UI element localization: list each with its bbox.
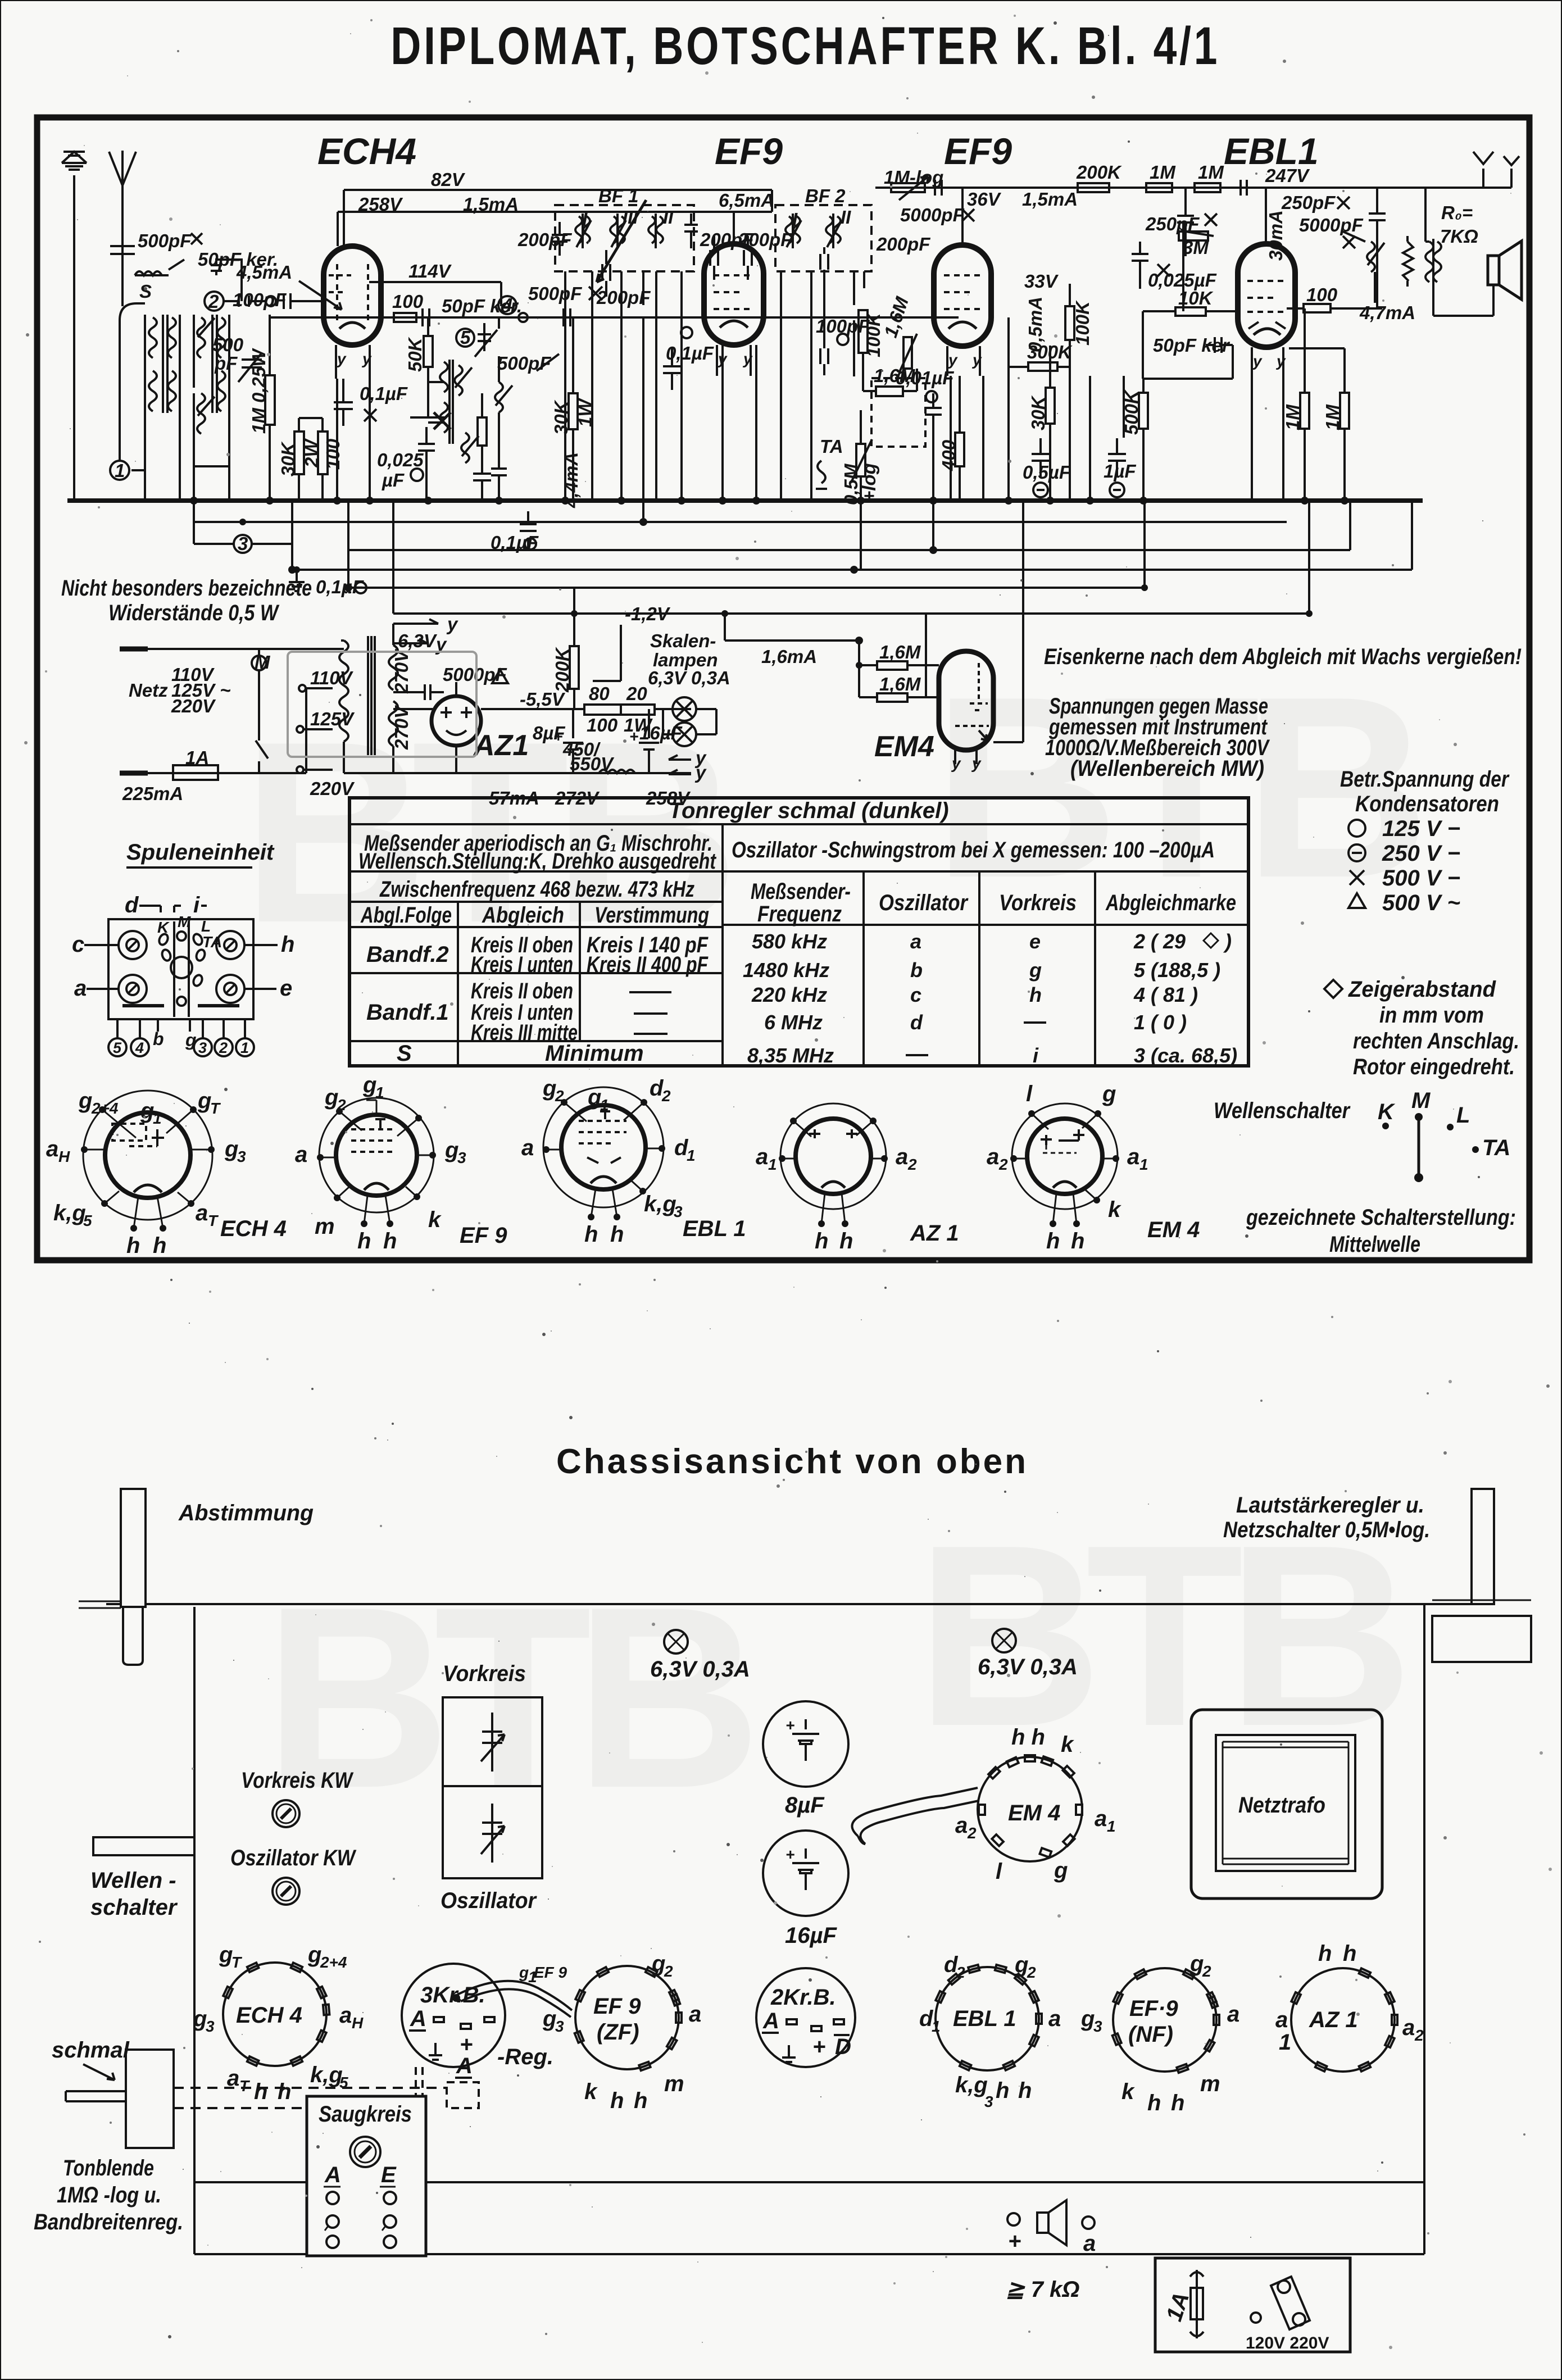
svg-text:g: g	[224, 1137, 238, 1161]
svg-text:schalter: schalter	[90, 1895, 178, 1920]
svg-text:i: i	[1033, 1044, 1039, 1067]
svg-text:b: b	[910, 959, 923, 982]
svg-text:2: 2	[907, 1156, 917, 1173]
svg-text:EF·9: EF·9	[1129, 1996, 1178, 2021]
svg-text:100K: 100K	[863, 312, 884, 357]
svg-text:in mm vom: in mm vom	[1379, 1003, 1484, 1028]
svg-text:50K: 50K	[405, 337, 425, 372]
svg-text:36V: 36V	[967, 189, 1002, 210]
svg-text:EM 4: EM 4	[1008, 1801, 1060, 1825]
svg-text:a: a	[1402, 2015, 1415, 2040]
svg-text:1MΩ -log u.: 1MΩ -log u.	[57, 2183, 161, 2208]
svg-text:g: g	[324, 1085, 338, 1110]
svg-text:k,g: k,g	[310, 2063, 343, 2087]
svg-text:h: h	[1147, 2091, 1161, 2115]
svg-text:EF 9: EF 9	[593, 1994, 641, 2019]
svg-text:g: g	[193, 2006, 207, 2031]
svg-text:6,5mA: 6,5mA	[719, 190, 774, 211]
svg-text:h: h	[839, 1229, 853, 1253]
svg-text:h: h	[278, 2079, 291, 2104]
svg-text:Minimum: Minimum	[545, 1041, 644, 1066]
svg-text:Kreis I unten: Kreis I unten	[471, 952, 573, 977]
svg-text:Rotor eingedreht.: Rotor eingedreht.	[1353, 1055, 1515, 1079]
svg-text:a: a	[339, 2003, 352, 2028]
svg-text:M: M	[1411, 1088, 1431, 1113]
svg-text:a: a	[896, 1144, 908, 1169]
svg-text:EF 9: EF 9	[460, 1223, 507, 1248]
svg-text:l: l	[996, 1859, 1002, 1884]
svg-text:225mA: 225mA	[122, 783, 183, 804]
svg-text:100: 100	[392, 291, 424, 312]
svg-text:T: T	[239, 2077, 251, 2095]
svg-text:5: 5	[113, 1039, 122, 1056]
svg-text:580 kHz: 580 kHz	[752, 930, 827, 953]
svg-text:EM4: EM4	[874, 730, 934, 763]
svg-text:AZ 1: AZ 1	[1309, 2007, 1358, 2032]
svg-text:Wellen -: Wellen -	[90, 1868, 176, 1893]
svg-text:220V: 220V	[171, 696, 216, 716]
svg-text:L: L	[1456, 1103, 1470, 1128]
svg-text:g: g	[1080, 2006, 1095, 2031]
svg-text:82V: 82V	[431, 169, 466, 190]
svg-text:a: a	[1227, 2002, 1239, 2027]
svg-text:AZ1: AZ1	[473, 729, 529, 762]
svg-text:3: 3	[555, 2018, 564, 2035]
svg-text:rechten Anschlag.: rechten Anschlag.	[1353, 1029, 1519, 1053]
svg-text:g: g	[1029, 959, 1042, 982]
svg-text:K: K	[157, 919, 170, 936]
svg-text:2: 2	[1414, 2027, 1424, 2044]
svg-text:500 V −: 500 V −	[1382, 866, 1460, 891]
svg-text:3: 3	[1093, 2018, 1102, 2035]
svg-text:1: 1	[768, 1156, 777, 1173]
svg-text:(NF): (NF)	[1128, 2022, 1173, 2047]
svg-text:5000pF: 5000pF	[1299, 215, 1364, 235]
svg-text:g: g	[519, 1964, 529, 1981]
svg-text:AZ 1: AZ 1	[910, 1221, 959, 1246]
svg-text:I: I	[582, 209, 588, 230]
svg-text:g: g	[219, 1942, 233, 1967]
svg-text:2: 2	[555, 1087, 564, 1105]
svg-text:Meßsender-: Meßsender-	[751, 879, 851, 904]
svg-text:l: l	[1026, 1082, 1033, 1106]
svg-text:6,3V 0,3A: 6,3V 0,3A	[650, 1657, 750, 1682]
svg-text:30K: 30K	[278, 441, 298, 476]
svg-text:II: II	[663, 207, 674, 228]
svg-text:gezeichnete Schalterstellung:: gezeichnete Schalterstellung:	[1246, 1205, 1516, 1230]
svg-text:2: 2	[661, 1087, 671, 1105]
svg-text:2+4: 2+4	[320, 1954, 347, 1971]
svg-text:y: y	[971, 351, 982, 369]
svg-text:h: h	[254, 2079, 267, 2104]
svg-text:g: g	[1014, 1952, 1028, 1977]
svg-text:e: e	[280, 976, 292, 1001]
svg-text:80: 80	[589, 683, 610, 704]
svg-text:50pF ker: 50pF ker	[1153, 335, 1230, 356]
svg-text:4 ( 81 ): 4 ( 81 )	[1133, 983, 1198, 1006]
svg-text:3: 3	[206, 2018, 215, 2035]
svg-text:1: 1	[153, 1110, 162, 1127]
svg-text:7KΩ: 7KΩ	[1440, 226, 1478, 247]
svg-text:220V: 220V	[310, 778, 355, 799]
svg-text:A: A	[410, 2006, 426, 2031]
svg-text:2: 2	[219, 1039, 228, 1056]
svg-text:100K: 100K	[1072, 300, 1093, 346]
svg-text:Tonblende: Tonblende	[63, 2156, 154, 2181]
svg-text:247V: 247V	[1265, 165, 1310, 186]
svg-text:y: y	[446, 614, 458, 634]
svg-text:EF9: EF9	[944, 130, 1012, 172]
svg-text:Vorkreis: Vorkreis	[999, 891, 1077, 915]
svg-text:a: a	[74, 976, 87, 1001]
svg-text:1: 1	[375, 1084, 384, 1101]
svg-text:a: a	[1275, 2007, 1288, 2032]
svg-text:≧ 7 kΩ: ≧ 7 kΩ	[1006, 2277, 1079, 2302]
svg-text:EM 4: EM 4	[1147, 1218, 1200, 1242]
svg-text:Bandf.1: Bandf.1	[366, 1000, 449, 1025]
svg-text:Kondensatoren: Kondensatoren	[1355, 792, 1499, 816]
svg-text:a: a	[1048, 2006, 1061, 2031]
svg-text:Nicht besonders bezeichnete: Nicht besonders bezeichnete	[61, 576, 312, 601]
svg-text:200K: 200K	[1076, 162, 1122, 183]
svg-text:k,g: k,g	[644, 1192, 676, 1216]
svg-text:i: i	[193, 893, 200, 918]
svg-text:1µF: 1µF	[1104, 461, 1136, 482]
svg-text:1: 1	[1139, 1156, 1148, 1173]
svg-text:500pF: 500pF	[497, 353, 551, 374]
svg-text:k: k	[1108, 1197, 1121, 1222]
svg-text:g: g	[1189, 1951, 1204, 1976]
svg-text:g: g	[140, 1098, 154, 1123]
svg-text:114V: 114V	[408, 261, 452, 281]
svg-text:TA: TA	[820, 436, 843, 457]
svg-text:Betr.Spannung der: Betr.Spannung der	[1340, 767, 1510, 792]
svg-text:2: 2	[664, 1963, 673, 1980]
svg-text:6 MHz: 6 MHz	[764, 1011, 823, 1034]
svg-text:Netzschalter 0,5M•log.: Netzschalter 0,5M•log.	[1223, 1518, 1430, 1542]
svg-text:1,6M: 1,6M	[879, 642, 921, 662]
svg-text:+: +	[553, 728, 562, 745]
svg-text:1: 1	[600, 1096, 609, 1114]
svg-text:d: d	[125, 893, 139, 918]
svg-text:c: c	[72, 932, 84, 957]
svg-text:h: h	[1318, 1941, 1332, 1966]
svg-text:300K: 300K	[1027, 342, 1073, 362]
svg-text:1,6M: 1,6M	[879, 674, 921, 694]
svg-text:ECH4: ECH4	[317, 130, 416, 172]
svg-text:1: 1	[932, 2018, 941, 2035]
svg-text:2 ( 29: 2 ( 29	[1133, 930, 1186, 953]
svg-text:270V: 270V	[391, 705, 412, 750]
svg-text:8,35 MHz: 8,35 MHz	[747, 1044, 834, 1067]
svg-text:8µF: 8µF	[785, 1793, 825, 1818]
svg-text:2: 2	[337, 1096, 346, 1114]
svg-text:k,g: k,g	[53, 1201, 86, 1225]
svg-text:2: 2	[1027, 1964, 1036, 1981]
svg-text:Oszillator: Oszillator	[879, 891, 969, 915]
svg-text:2: 2	[998, 1156, 1008, 1173]
svg-text:6,3V 0,3A: 6,3V 0,3A	[978, 1655, 1078, 1679]
svg-text:g: g	[185, 1030, 197, 1050]
svg-text:3: 3	[457, 1149, 466, 1166]
svg-text:2: 2	[967, 1824, 977, 1842]
svg-text:Zeigerabstand: Zeigerabstand	[1348, 977, 1496, 1002]
svg-text:m: m	[315, 1214, 335, 1239]
svg-text:BF 1: BF 1	[598, 185, 639, 206]
svg-text:g: g	[197, 1088, 211, 1113]
svg-text:4: 4	[502, 294, 512, 315]
svg-text:y: y	[951, 755, 961, 772]
svg-text:g: g	[444, 1138, 458, 1162]
svg-text:h: h	[1171, 2091, 1184, 2115]
svg-text:R₀=: R₀=	[1441, 202, 1473, 223]
svg-text:1: 1	[1279, 2030, 1291, 2055]
svg-text:T: T	[208, 1212, 219, 1229]
svg-text:Netz: Netz	[129, 680, 168, 701]
svg-text:550V: 550V	[570, 753, 615, 774]
svg-text:h: h	[815, 1229, 828, 1253]
svg-text:Oszillator KW: Oszillator KW	[230, 1846, 357, 1870]
svg-text:(Wellenbereich MW): (Wellenbereich MW)	[1070, 756, 1264, 781]
svg-text:S: S	[397, 1041, 412, 1066]
svg-text:Chassisansicht von oben: Chassisansicht von oben	[556, 1442, 1028, 1481]
svg-text:Verstimmung: Verstimmung	[594, 903, 709, 928]
svg-text:y: y	[1252, 352, 1263, 370]
svg-text:h h: h h	[1011, 1725, 1045, 1750]
svg-text:3 (ca. 68,5): 3 (ca. 68,5)	[1134, 1044, 1237, 1067]
svg-text:h: h	[281, 932, 294, 957]
svg-text:1: 1	[240, 1039, 249, 1056]
svg-text:1480 kHz: 1480 kHz	[743, 959, 829, 982]
svg-text:0,01µF: 0,01µF	[896, 367, 954, 388]
svg-text:h: h	[1029, 983, 1042, 1006]
svg-text:M: M	[178, 913, 191, 930]
svg-text:EF9: EF9	[715, 130, 783, 172]
svg-text:a: a	[1095, 1806, 1107, 1831]
svg-text:h: h	[584, 1222, 598, 1247]
svg-text:TA: TA	[1482, 1136, 1510, 1160]
svg-text:500pF: 500pF	[528, 283, 582, 304]
svg-text:200pF: 200pF	[876, 234, 930, 255]
svg-text:+: +	[1008, 2229, 1021, 2254]
svg-text:Zwischenfrequenz 468 bezw. 473: Zwischenfrequenz 468 bezw. 473 kHz	[379, 877, 694, 902]
svg-text:1: 1	[1107, 1818, 1116, 1835]
svg-text:Bandf.2: Bandf.2	[366, 942, 449, 967]
svg-text:H: H	[58, 1148, 70, 1165]
svg-text:Bandbreitenreg.: Bandbreitenreg.	[34, 2210, 183, 2234]
svg-text:g: g	[542, 2006, 556, 2031]
svg-text:schmal: schmal	[52, 2038, 130, 2063]
svg-text:(ZF): (ZF)	[597, 2020, 639, 2045]
svg-text:0,025: 0,025	[377, 449, 424, 470]
svg-text:a: a	[46, 1137, 58, 1161]
svg-text:k,g: k,g	[955, 2073, 988, 2097]
svg-text:0,1µF: 0,1µF	[316, 576, 364, 597]
svg-text:30K: 30K	[1028, 395, 1048, 430]
svg-text:H: H	[352, 2014, 364, 2032]
svg-text:h: h	[1071, 1229, 1084, 1253]
svg-text:h: h	[996, 2078, 1009, 2103]
svg-text:2: 2	[1202, 1963, 1211, 1980]
svg-text:Wellensch.Stellung:K, Drehko a: Wellensch.Stellung:K, Drehko ausgedreht	[358, 849, 716, 874]
svg-text:Lautstärkeregler u.: Lautstärkeregler u.	[1236, 1493, 1424, 1518]
svg-text:+: +	[812, 2034, 825, 2059]
svg-text:1 ( 0 ): 1 ( 0 )	[1134, 1011, 1187, 1034]
svg-text:250pF: 250pF	[1281, 192, 1336, 213]
svg-text:a: a	[521, 1136, 534, 1160]
svg-text:3: 3	[984, 2093, 993, 2110]
svg-text:33V: 33V	[1024, 271, 1059, 292]
svg-text:y: y	[336, 350, 347, 367]
svg-text:E: E	[381, 2163, 397, 2187]
svg-text:µF: µF	[382, 470, 405, 490]
svg-text:y: y	[361, 350, 372, 367]
svg-text:a: a	[756, 1144, 768, 1169]
svg-text:1,5mA: 1,5mA	[1022, 189, 1078, 210]
svg-text:a: a	[910, 930, 921, 953]
svg-text:e: e	[1029, 930, 1041, 953]
svg-text:a: a	[1083, 2231, 1096, 2256]
svg-text:M: M	[255, 652, 271, 673]
svg-text:EBL 1: EBL 1	[953, 2006, 1016, 2031]
svg-text:h: h	[610, 1222, 624, 1247]
svg-text:h: h	[357, 1229, 371, 1253]
svg-text:1M: 1M	[1322, 404, 1343, 430]
svg-text:3M: 3M	[1183, 237, 1209, 258]
svg-text:3: 3	[237, 1148, 246, 1165]
svg-text:Abgleichmarke: Abgleichmarke	[1105, 891, 1236, 915]
svg-text:a: a	[1127, 1144, 1139, 1169]
svg-text:Abstimmung: Abstimmung	[178, 1501, 314, 1525]
svg-text:Wellenschalter: Wellenschalter	[1214, 1098, 1351, 1123]
svg-text:h: h	[610, 2088, 624, 2113]
svg-text:m: m	[1200, 2072, 1220, 2096]
svg-text:6,3V 0,3A: 6,3V 0,3A	[648, 667, 730, 688]
svg-text:200pF: 200pF	[738, 229, 792, 250]
svg-text:125 V −: 125 V −	[1382, 816, 1460, 841]
svg-text:3: 3	[674, 1203, 683, 1220]
svg-text:2: 2	[956, 1964, 965, 1981]
svg-text:pF: pF	[214, 353, 238, 374]
svg-text:5000pF: 5000pF	[900, 205, 965, 225]
svg-text:+: +	[629, 728, 638, 745]
svg-text:200pF: 200pF	[517, 229, 572, 250]
svg-text:+: +	[785, 1846, 794, 1863]
svg-text:d: d	[910, 1011, 923, 1034]
svg-text:1M: 1M	[1150, 162, 1176, 183]
svg-text:4,5mA: 4,5mA	[236, 262, 292, 283]
svg-text:2+4: 2+4	[91, 1100, 119, 1117]
svg-text:Vorkreis KW: Vorkreis KW	[241, 1768, 354, 1793]
svg-text:100: 100	[1306, 284, 1338, 305]
svg-text:A: A	[324, 2163, 341, 2187]
svg-text:1: 1	[115, 460, 125, 481]
svg-text:K: K	[1378, 1100, 1396, 1124]
svg-text:a: a	[295, 1142, 307, 1167]
svg-text:4,7mA: 4,7mA	[1359, 302, 1415, 323]
svg-text:a: a	[196, 1201, 208, 1225]
svg-text:5 (188,5 ): 5 (188,5 )	[1134, 959, 1220, 982]
svg-text:h: h	[1343, 1941, 1356, 1966]
svg-text:Mittelwelle: Mittelwelle	[1329, 1232, 1420, 1257]
svg-text:y: y	[971, 755, 982, 772]
svg-text:II: II	[841, 207, 851, 228]
svg-text:6,3V: 6,3V	[398, 630, 438, 651]
svg-text:g: g	[307, 1942, 321, 1967]
svg-text:30K: 30K	[551, 399, 571, 435]
svg-text:1: 1	[687, 1147, 696, 1164]
svg-text:g: g	[1054, 1858, 1068, 1883]
svg-text:-1,2V: -1,2V	[625, 603, 671, 624]
svg-text:T: T	[210, 1100, 221, 1117]
svg-text:Kreis II 400 pF: Kreis II 400 pF	[587, 952, 709, 977]
svg-text:4: 4	[135, 1039, 144, 1056]
svg-text:EF 9: EF 9	[534, 1964, 567, 1981]
svg-text:500pF: 500pF	[138, 230, 192, 251]
svg-text:400: 400	[938, 439, 959, 471]
svg-text:200K: 200K	[552, 647, 573, 693]
svg-text:30mA: 30mA	[1265, 210, 1286, 261]
svg-text:220 kHz: 220 kHz	[751, 983, 827, 1006]
svg-text:y: y	[694, 762, 707, 783]
svg-text:g: g	[362, 1073, 376, 1097]
svg-text:k: k	[584, 2079, 598, 2104]
svg-text:2Kr.B.: 2Kr.B.	[770, 1985, 836, 2010]
svg-text:500 V ~: 500 V ~	[1382, 891, 1460, 915]
svg-text:5: 5	[460, 327, 471, 348]
svg-text:Oszillator: Oszillator	[441, 1888, 537, 1913]
svg-text:A: A	[456, 2054, 473, 2078]
svg-text:100: 100	[587, 715, 618, 735]
svg-text:0,1µF: 0,1µF	[360, 383, 408, 404]
svg-text:BF 2: BF 2	[805, 185, 846, 206]
svg-text:k: k	[1121, 2079, 1135, 2104]
svg-text:L: L	[201, 918, 211, 935]
svg-text:2: 2	[208, 291, 219, 312]
svg-text:k: k	[428, 1207, 442, 1232]
svg-text:-Reg.: -Reg.	[497, 2045, 553, 2069]
svg-text:1,6mA: 1,6mA	[761, 646, 817, 667]
svg-text:Tonregler schmal (dunkel): Tonregler schmal (dunkel)	[669, 798, 949, 823]
svg-text:+: +	[785, 1716, 794, 1734]
svg-text:h: h	[383, 1229, 397, 1253]
svg-text:Netztrafo: Netztrafo	[1238, 1793, 1325, 1818]
svg-text:g: g	[542, 1076, 556, 1101]
svg-text:5: 5	[83, 1212, 92, 1229]
svg-text:b: b	[153, 1029, 164, 1049]
svg-text:ECH 4: ECH 4	[236, 2003, 302, 2028]
svg-text:g: g	[78, 1088, 92, 1113]
svg-text:500: 500	[212, 334, 244, 355]
svg-text:20: 20	[626, 683, 647, 704]
svg-text:g: g	[587, 1085, 601, 1110]
svg-text:Saugkreis: Saugkreis	[319, 2102, 412, 2127]
svg-text:Eisenkerne nach dem Abgleich m: Eisenkerne nach dem Abgleich mit Wachs v…	[1044, 644, 1522, 669]
svg-text:A: A	[762, 2009, 779, 2033]
svg-text:1M: 1M	[1198, 162, 1224, 183]
svg-text:g: g	[651, 1951, 665, 1976]
svg-text:h: h	[126, 1233, 140, 1258]
svg-text:270V: 270V	[391, 648, 412, 694]
svg-text:Oszillator -Schwingstrom bei X: Oszillator -Schwingstrom bei X gemessen:…	[732, 838, 1215, 862]
svg-text:S: S	[139, 281, 152, 302]
svg-text:Frequenz: Frequenz	[757, 902, 842, 926]
svg-text:y: y	[1275, 352, 1286, 370]
svg-text:h: h	[1018, 2078, 1032, 2103]
svg-text:y: y	[742, 350, 753, 367]
svg-text:Spuleneinheit: Spuleneinheit	[126, 840, 275, 865]
svg-text:DIPLOMAT, BOTSCHAFTER K. Bl. 4: DIPLOMAT, BOTSCHAFTER K. Bl. 4/1	[390, 17, 1220, 76]
